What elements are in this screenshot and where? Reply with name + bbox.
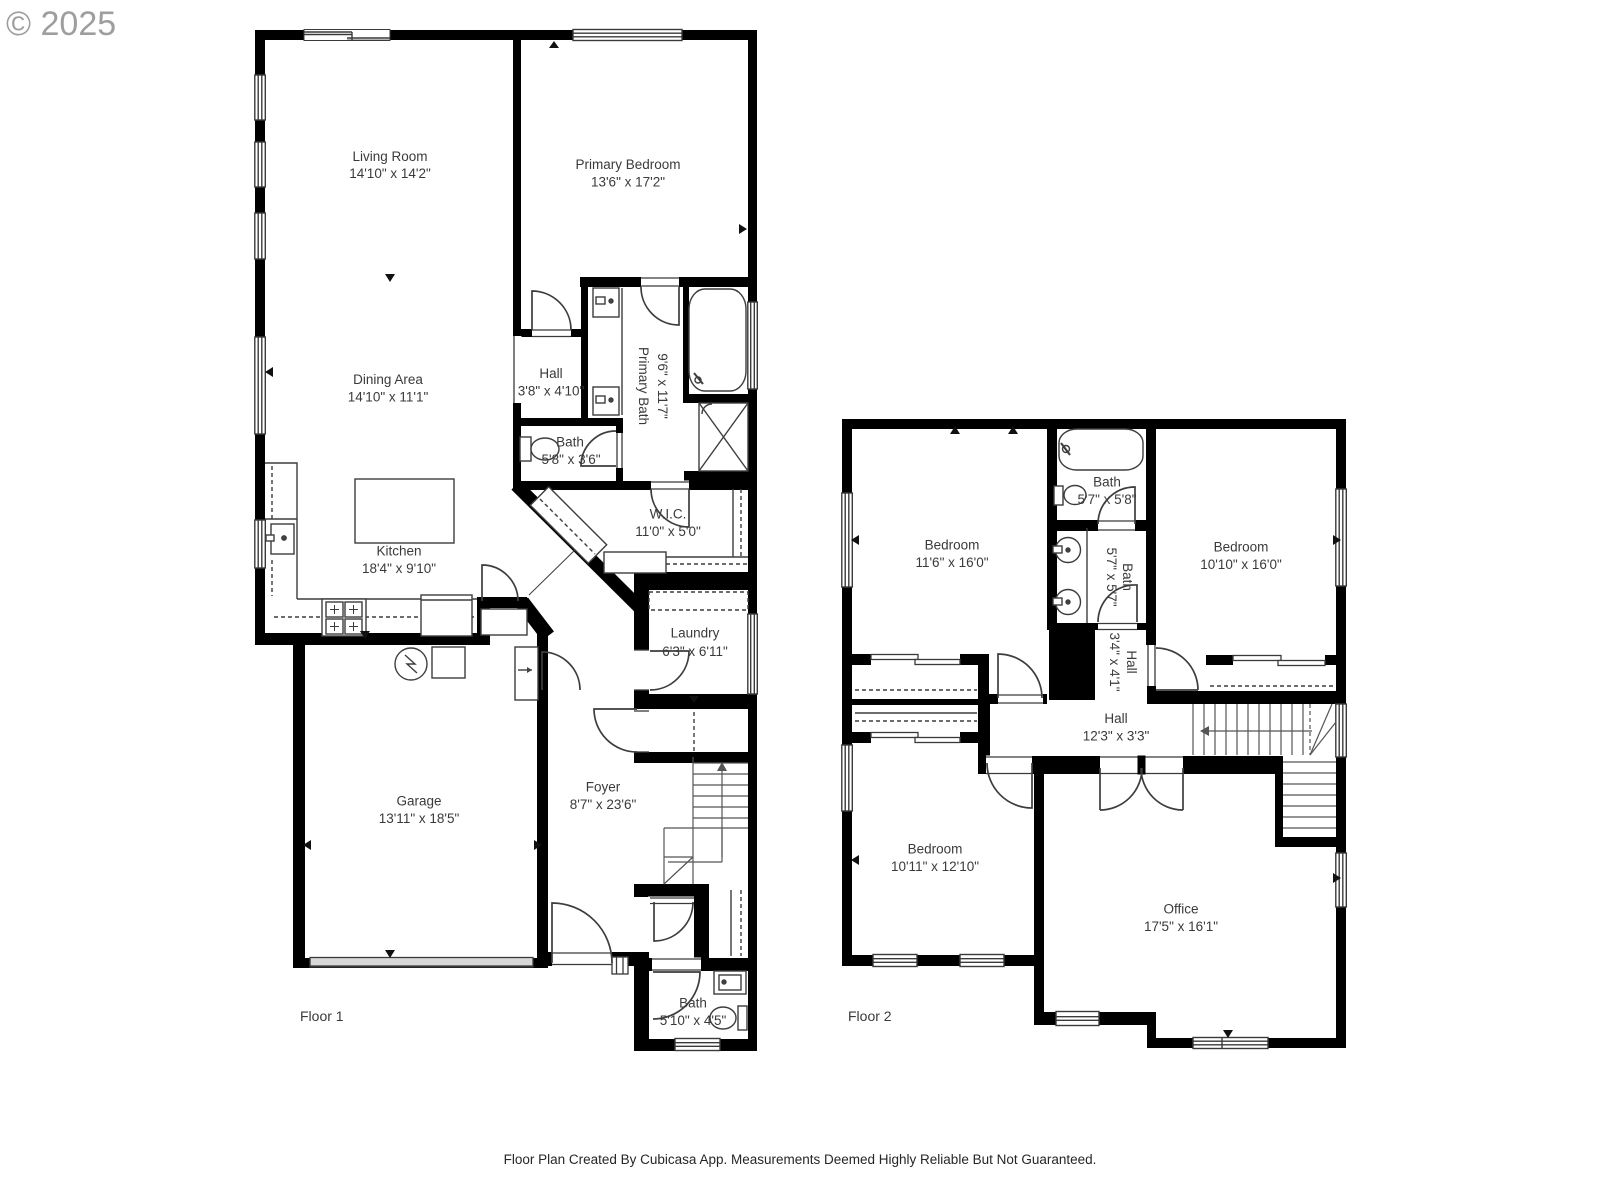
svg-text:Hall: Hall [1124,650,1139,673]
svg-text:14'10" x 11'1": 14'10" x 11'1" [348,390,429,405]
svg-text:17'5" x 16'1": 17'5" x 16'1" [1144,919,1218,934]
svg-text:Bedroom: Bedroom [908,842,963,857]
svg-text:Office: Office [1163,902,1198,917]
svg-text:Bedroom: Bedroom [1214,540,1269,555]
svg-text:Living Room: Living Room [352,149,427,164]
svg-text:Floor Plan Created By Cubicasa: Floor Plan Created By Cubicasa App. Meas… [504,1152,1097,1167]
svg-text:11'0" x 5'0": 11'0" x 5'0" [635,524,701,539]
svg-text:Bath: Bath [679,996,707,1011]
svg-text:3'8" x 4'10": 3'8" x 4'10" [518,384,585,399]
svg-text:5'7" x 5'7": 5'7" x 5'7" [1104,547,1119,606]
svg-text:8'7" x 23'6": 8'7" x 23'6" [570,797,637,812]
svg-text:Hall: Hall [1104,711,1127,726]
svg-text:Bath: Bath [556,435,584,450]
svg-text:Primary Bedroom: Primary Bedroom [575,157,680,172]
svg-text:13'11" x 18'5": 13'11" x 18'5" [379,811,460,826]
svg-text:9'6" x 11'7": 9'6" x 11'7" [655,353,670,419]
svg-text:3'4" x 4'1": 3'4" x 4'1" [1107,632,1122,691]
svg-text:Hall: Hall [539,366,562,381]
svg-text:11'6" x 16'0": 11'6" x 16'0" [915,555,988,570]
svg-text:Floor 1: Floor 1 [300,1008,344,1024]
svg-text:Bedroom: Bedroom [925,538,980,553]
svg-text:Foyer: Foyer [586,780,621,795]
svg-text:12'3" x 3'3": 12'3" x 3'3" [1083,729,1150,744]
svg-text:5'7" x 5'8": 5'7" x 5'8" [1077,492,1136,507]
svg-text:Bath: Bath [1093,475,1121,490]
svg-text:Primary Bath: Primary Bath [636,347,651,425]
svg-text:18'4" x 9'10": 18'4" x 9'10" [362,561,436,576]
svg-text:Dining Area: Dining Area [353,372,423,387]
svg-text:Laundry: Laundry [671,626,720,641]
svg-text:14'10" x 14'2": 14'10" x 14'2" [349,166,431,181]
svg-text:Kitchen: Kitchen [376,544,421,559]
svg-text:W.I.C.: W.I.C. [650,507,687,522]
svg-text:10'10" x 16'0": 10'10" x 16'0" [1200,557,1282,572]
svg-text:5'10" x 4'5": 5'10" x 4'5" [660,1013,727,1028]
svg-text:13'6" x 17'2": 13'6" x 17'2" [591,175,665,190]
svg-text:10'11" x 12'10": 10'11" x 12'10" [891,859,979,874]
svg-text:5'8" x 3'6": 5'8" x 3'6" [541,452,600,467]
svg-text:© 2025: © 2025 [6,5,116,43]
svg-text:Garage: Garage [396,794,441,809]
svg-text:Bath: Bath [1120,563,1135,591]
svg-text:Floor 2: Floor 2 [848,1008,892,1024]
svg-text:6'3" x 6'11": 6'3" x 6'11" [662,644,728,659]
